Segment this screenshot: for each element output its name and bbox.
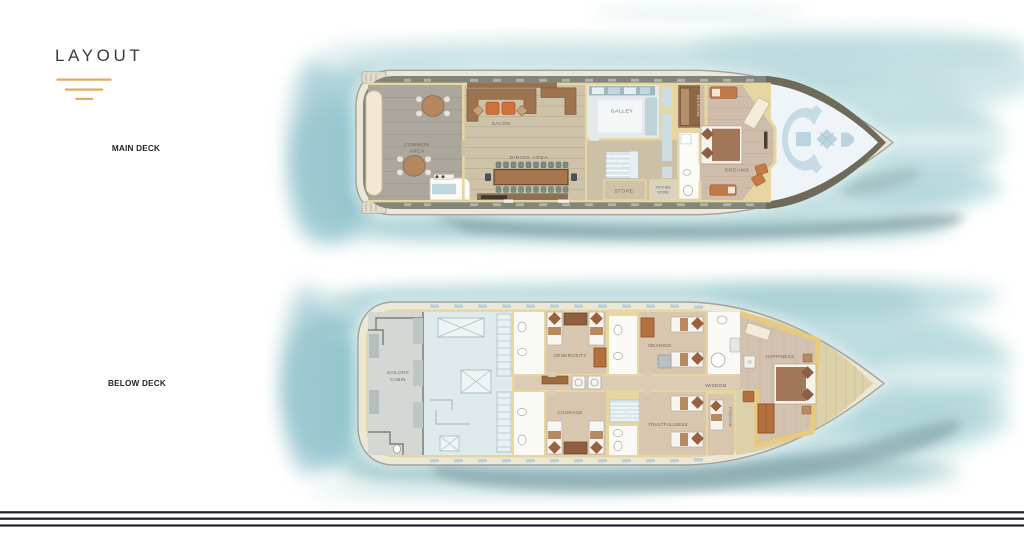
svg-text:DINING AREA: DINING AREA	[510, 155, 549, 161]
svg-text:GALLEY: GALLEY	[611, 109, 634, 115]
svg-text:CABIN: CABIN	[390, 377, 406, 382]
svg-text:DREAMS: DREAMS	[725, 168, 750, 174]
svg-text:MAIN DECK: MAIN DECK	[112, 144, 160, 153]
svg-text:STORE: STORE	[614, 188, 633, 194]
svg-text:TRUSTFULLNESS: TRUSTFULLNESS	[648, 422, 687, 427]
svg-text:LAYOUT: LAYOUT	[55, 46, 143, 65]
svg-text:COMMON: COMMON	[404, 142, 430, 148]
svg-text:COURAGE: COURAGE	[557, 410, 582, 415]
svg-text:SALON: SALON	[492, 121, 511, 127]
svg-text:MEANING: MEANING	[648, 343, 672, 348]
svg-text:STORE: STORE	[657, 190, 669, 194]
svg-text:SAILORS: SAILORS	[387, 370, 409, 375]
svg-text:HAPPINESS: HAPPINESS	[766, 354, 795, 359]
svg-text:WISDOM: WISDOM	[705, 383, 726, 388]
svg-text:GENEROSITY: GENEROSITY	[553, 353, 586, 358]
svg-text:AREA: AREA	[409, 149, 425, 155]
svg-text:KITCHEN: KITCHEN	[656, 186, 671, 190]
svg-text:BELOW DECK: BELOW DECK	[108, 379, 166, 388]
svg-text:POSITIVE: POSITIVE	[728, 407, 733, 427]
